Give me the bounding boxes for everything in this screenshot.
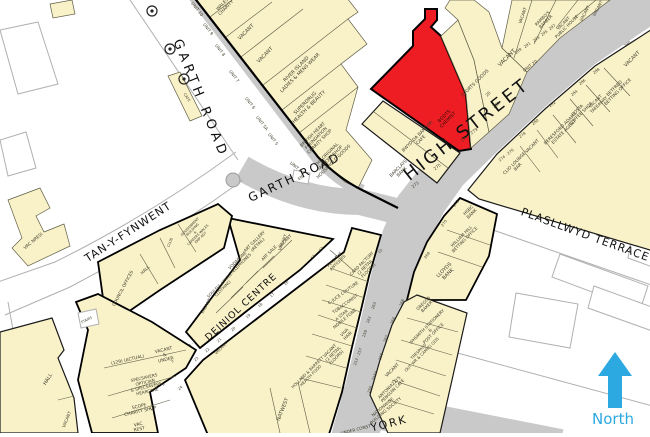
map-label: 20 bbox=[230, 325, 237, 332]
junction-circle bbox=[226, 173, 240, 187]
outline-building bbox=[0, 22, 58, 94]
building-small-topleft bbox=[50, 0, 75, 18]
outline-building bbox=[0, 132, 36, 176]
map-container[interactable]: GARTH ROADGARTH ROADHIGH STREETTAN-Y-FYN… bbox=[0, 0, 650, 437]
goad-map: GARTH ROADGARTH ROADHIGH STREETTAN-Y-FYN… bbox=[0, 0, 650, 433]
building-vac-nresi bbox=[8, 188, 70, 266]
north-label: North bbox=[592, 410, 634, 428]
tree-icon bbox=[147, 6, 157, 16]
map-label: UNIT 5 bbox=[267, 132, 280, 146]
map-label: 19 bbox=[245, 312, 252, 319]
map-label: UNIT 6 bbox=[244, 96, 257, 110]
outline-building bbox=[509, 293, 578, 348]
north-arrow-icon bbox=[598, 352, 632, 408]
block-garth-road-shops bbox=[197, 0, 372, 188]
map-label: 24 bbox=[177, 384, 184, 391]
map-label: UNIT 5A bbox=[255, 115, 269, 131]
map-label: UNIT 7 bbox=[228, 69, 241, 83]
north-arrow bbox=[598, 352, 632, 408]
map-label: 22 bbox=[204, 346, 211, 353]
